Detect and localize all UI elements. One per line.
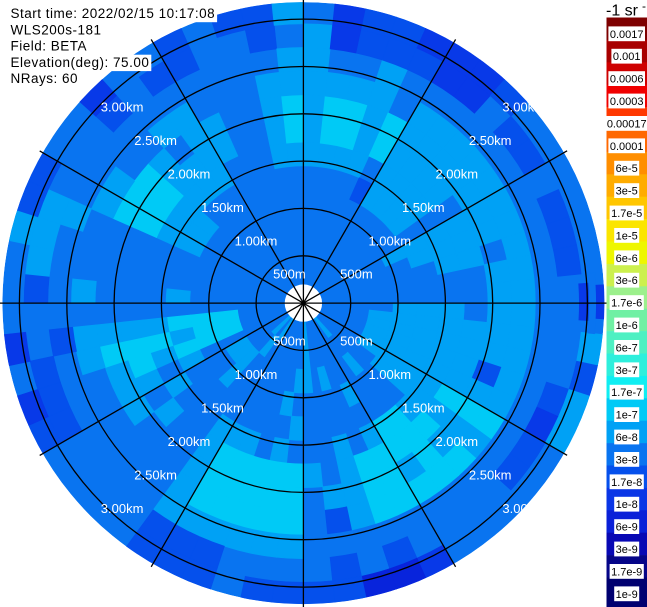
svg-text:1.7e-5: 1.7e-5	[611, 208, 642, 220]
svg-text:2.50km: 2.50km	[134, 133, 177, 148]
svg-text:0.0017: 0.0017	[610, 29, 644, 41]
svg-text:WLS200s-181: WLS200s-181	[11, 22, 102, 37]
svg-text:500m: 500m	[273, 267, 306, 282]
svg-text:3.00km: 3.00km	[101, 99, 144, 114]
svg-text:Elevation(deg): 75.00: Elevation(deg): 75.00	[11, 55, 150, 70]
svg-text:2.00km: 2.00km	[168, 166, 211, 181]
svg-text:1.50km: 1.50km	[402, 200, 445, 215]
svg-text:-: -	[642, 0, 646, 13]
svg-text:1.7e-9: 1.7e-9	[611, 566, 642, 578]
svg-text:1.50km: 1.50km	[201, 401, 244, 416]
svg-text:6e-5: 6e-5	[616, 163, 638, 175]
svg-text:2.00km: 2.00km	[435, 166, 478, 181]
svg-text:6e-7: 6e-7	[616, 342, 638, 354]
svg-text:2.00km: 2.00km	[168, 434, 211, 449]
svg-text:3e-7: 3e-7	[616, 365, 638, 377]
svg-text:1.50km: 1.50km	[201, 200, 244, 215]
svg-text:0.00017: 0.00017	[607, 118, 647, 130]
svg-text:1e-9: 1e-9	[616, 589, 638, 601]
svg-text:1.00km: 1.00km	[235, 367, 278, 382]
svg-text:6e-6: 6e-6	[616, 253, 638, 265]
svg-text:1.00km: 1.00km	[235, 233, 278, 248]
svg-text:1.7e-6: 1.7e-6	[611, 298, 642, 310]
svg-text:3.00km: 3.00km	[502, 501, 545, 516]
svg-text:1e-5: 1e-5	[616, 230, 638, 242]
svg-text:3e-8: 3e-8	[616, 454, 638, 466]
svg-text:3e-6: 3e-6	[616, 275, 638, 287]
svg-text:2.00km: 2.00km	[435, 434, 478, 449]
svg-text:1e-7: 1e-7	[616, 410, 638, 422]
svg-text:1e-8: 1e-8	[616, 499, 638, 511]
svg-text:1.00km: 1.00km	[368, 233, 411, 248]
svg-text:3.00km: 3.00km	[502, 99, 545, 114]
svg-text:Field: BETA: Field: BETA	[11, 39, 88, 54]
svg-text:500m: 500m	[273, 334, 306, 349]
svg-text:1.50km: 1.50km	[402, 401, 445, 416]
svg-text:1.7e-8: 1.7e-8	[611, 477, 642, 489]
svg-text:1e-6: 1e-6	[616, 320, 638, 332]
svg-text:Start time: 2022/02/15 10:17:0: Start time: 2022/02/15 10:17:08	[11, 6, 216, 21]
svg-text:6e-9: 6e-9	[616, 522, 638, 534]
svg-text:-1 sr: -1 sr	[606, 3, 639, 20]
svg-text:3e-9: 3e-9	[616, 544, 638, 556]
svg-text:0.001: 0.001	[613, 51, 641, 63]
svg-text:2.50km: 2.50km	[134, 468, 177, 483]
svg-text:0.0001: 0.0001	[610, 141, 644, 153]
svg-text:2.50km: 2.50km	[469, 468, 512, 483]
svg-text:6e-8: 6e-8	[616, 432, 638, 444]
svg-text:1.7e-7: 1.7e-7	[611, 387, 642, 399]
svg-text:NRays: 60: NRays: 60	[11, 71, 79, 86]
svg-text:2.50km: 2.50km	[469, 133, 512, 148]
svg-text:0.0006: 0.0006	[610, 74, 644, 86]
svg-text:1.00km: 1.00km	[368, 367, 411, 382]
svg-text:3.00km: 3.00km	[101, 501, 144, 516]
svg-text:3e-5: 3e-5	[616, 186, 638, 198]
svg-text:500m: 500m	[340, 334, 373, 349]
svg-text:500m: 500m	[340, 267, 373, 282]
svg-text:0.0003: 0.0003	[610, 96, 644, 108]
